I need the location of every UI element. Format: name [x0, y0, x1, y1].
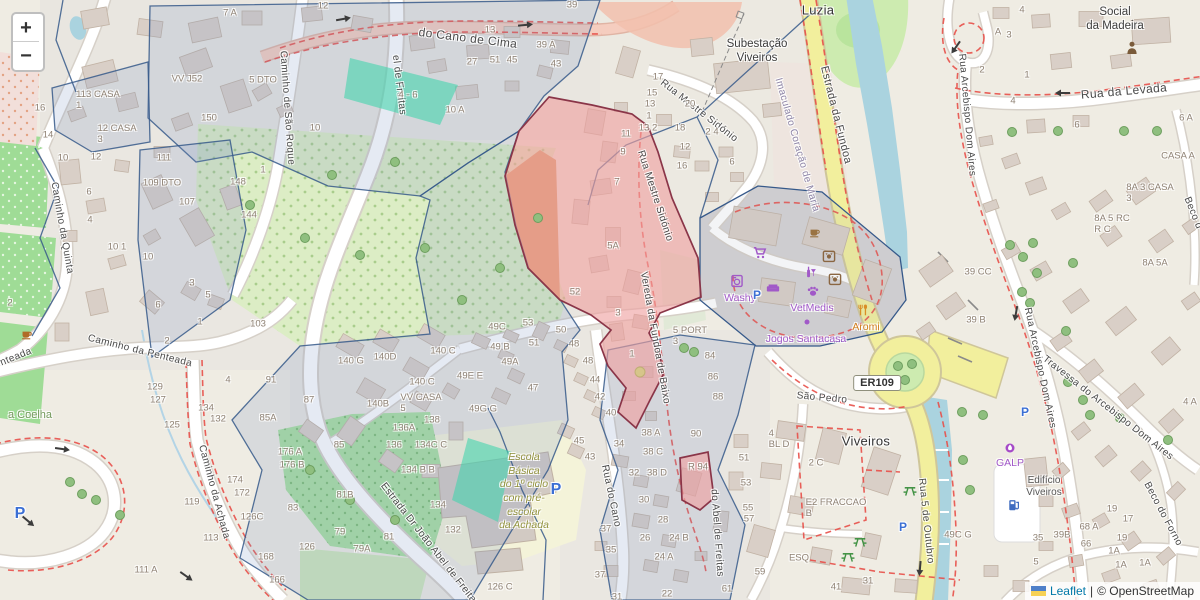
- attribution-separator: |: [1090, 584, 1093, 598]
- ukraine-flag-icon: [1031, 586, 1046, 596]
- zoom-in-button[interactable]: +: [13, 14, 39, 42]
- attribution-bar: Leaflet | © OpenStreetMap: [1025, 582, 1200, 600]
- osm-attribution: © OpenStreetMap: [1097, 584, 1194, 598]
- map[interactable]: el de FreitasCaminho de São Roquedo Cano…: [0, 0, 1200, 600]
- zoom-control: + −: [11, 12, 45, 72]
- map-canvas: [0, 0, 1200, 600]
- zoom-out-button[interactable]: −: [13, 42, 39, 70]
- leaflet-link[interactable]: Leaflet: [1050, 584, 1086, 598]
